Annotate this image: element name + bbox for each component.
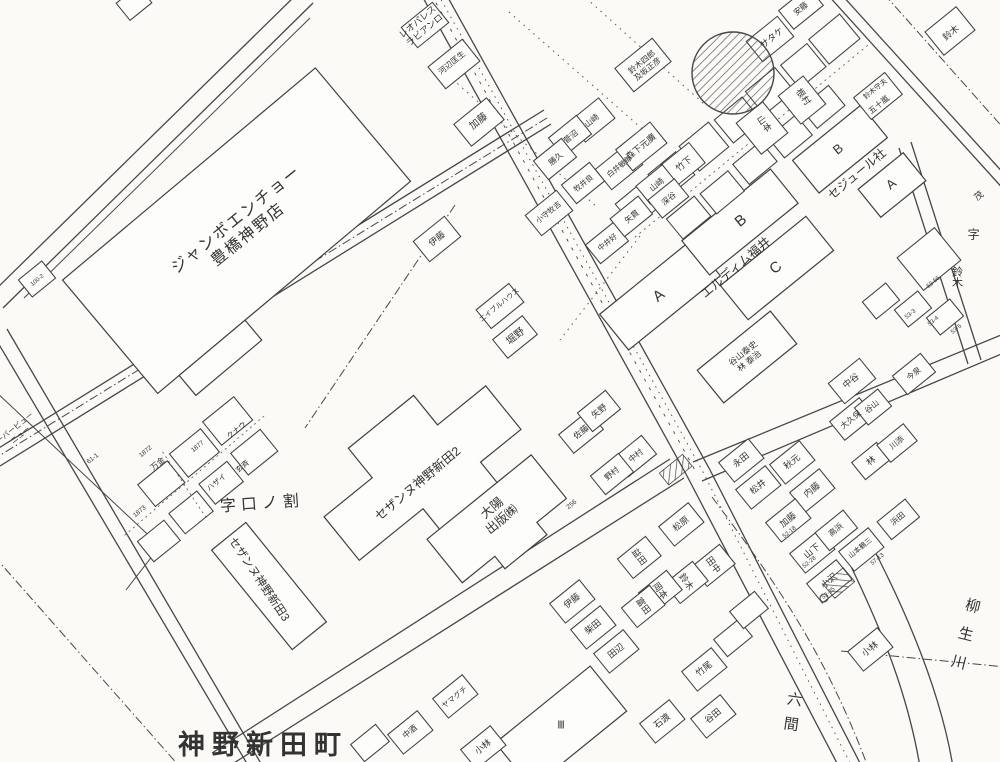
map-drawing: [0, 0, 1000, 762]
junction-hatch-mark: [659, 454, 692, 485]
left-parcel-line: [0, 390, 160, 590]
building-jumbo-encho: [63, 68, 428, 413]
building-block-iii: [495, 666, 626, 762]
building-taniyama: [697, 311, 796, 403]
houses-kuchinowari: [99, 386, 295, 567]
scanned-residential-map: ジャンボエンチョー 豊橋神野店字口ノ割セザンヌ神野新田2セザンヌ神野新田3大陽 …: [0, 0, 1000, 762]
southwest-road-edge-1: [0, 336, 249, 762]
building-cezanne-3: [212, 522, 327, 649]
boundary-line: [0, 556, 180, 762]
building-sejour-a: [858, 153, 926, 217]
hatched-circle-stamp: [692, 32, 774, 114]
